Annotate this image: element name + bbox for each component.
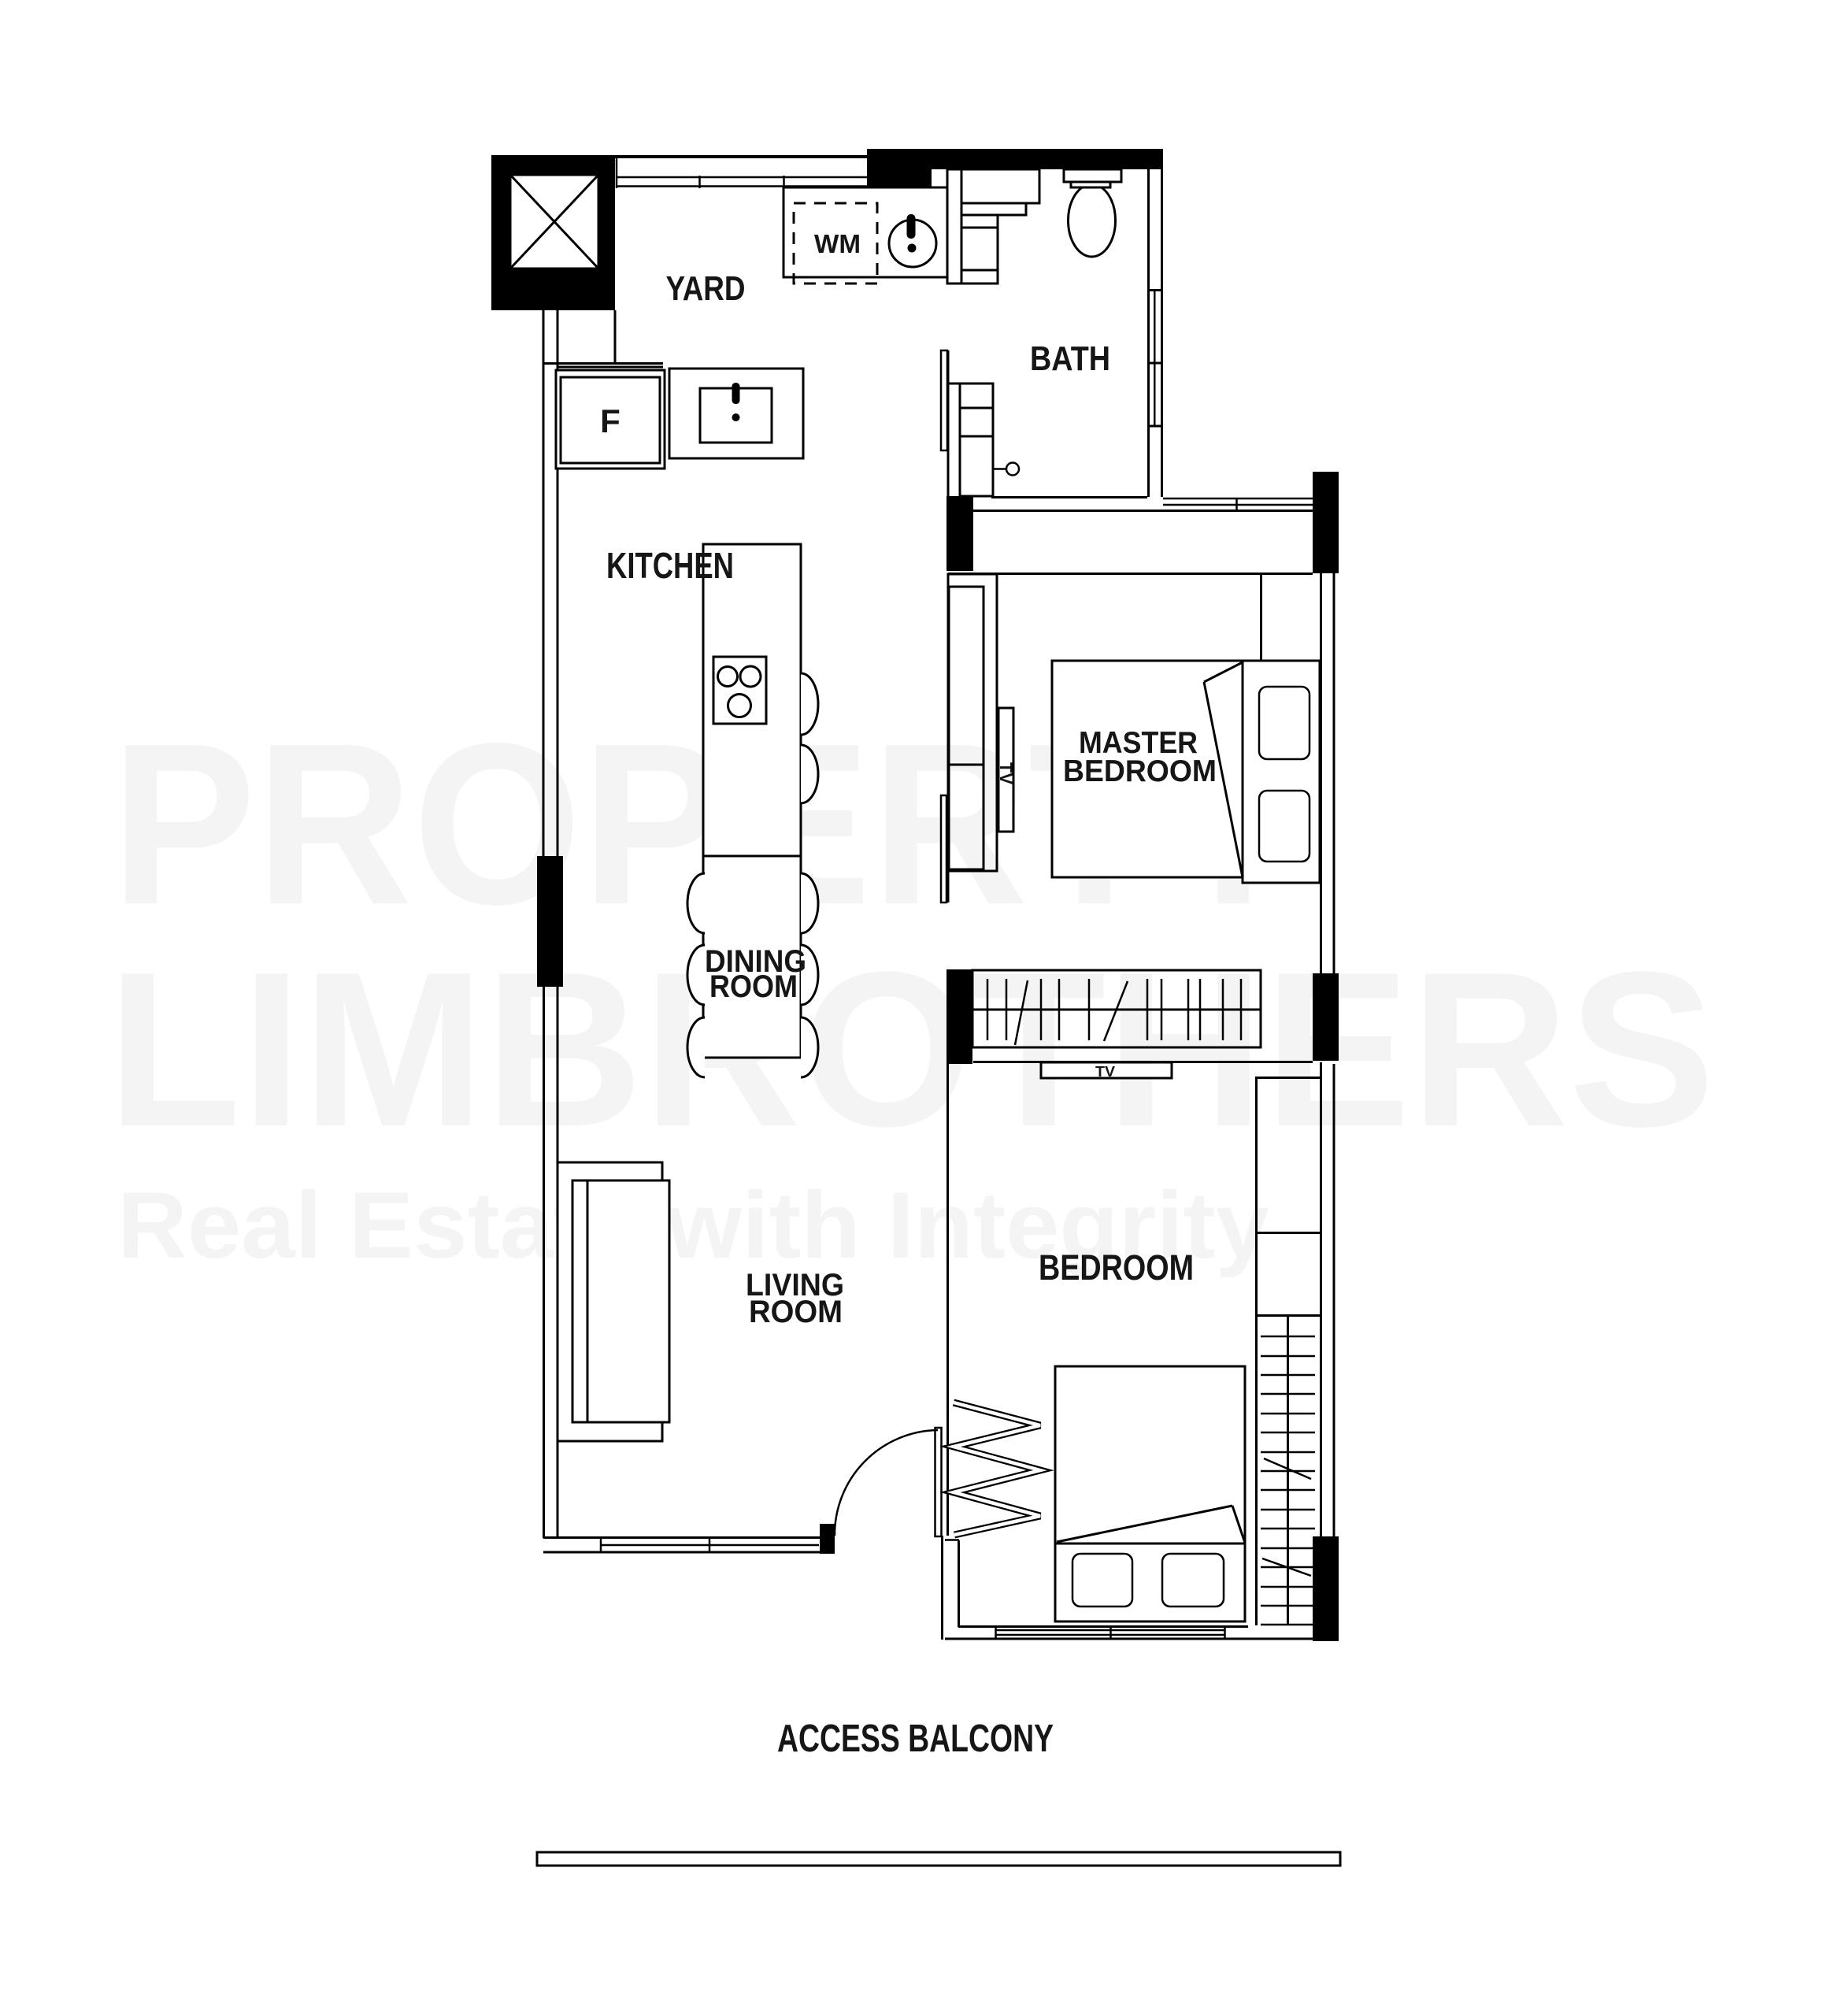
- svg-text:BEDROOM: BEDROOM: [1039, 1247, 1194, 1288]
- svg-text:TV: TV: [996, 762, 1016, 784]
- svg-text:TV: TV: [1095, 1064, 1115, 1080]
- svg-text:BEDROOM: BEDROOM: [1063, 754, 1217, 788]
- svg-text:ROOM: ROOM: [749, 1295, 843, 1329]
- svg-text:KITCHEN: KITCHEN: [606, 545, 734, 586]
- svg-text:BATH: BATH: [1030, 339, 1110, 378]
- svg-text:LIMBROTHERS: LIMBROTHERS: [107, 927, 1715, 1173]
- svg-text:F: F: [600, 402, 620, 439]
- svg-text:YARD: YARD: [666, 269, 746, 308]
- svg-text:WM: WM: [814, 229, 861, 258]
- svg-text:ROOM: ROOM: [709, 969, 798, 1004]
- svg-text:ACCESS BALCONY: ACCESS BALCONY: [777, 1718, 1054, 1760]
